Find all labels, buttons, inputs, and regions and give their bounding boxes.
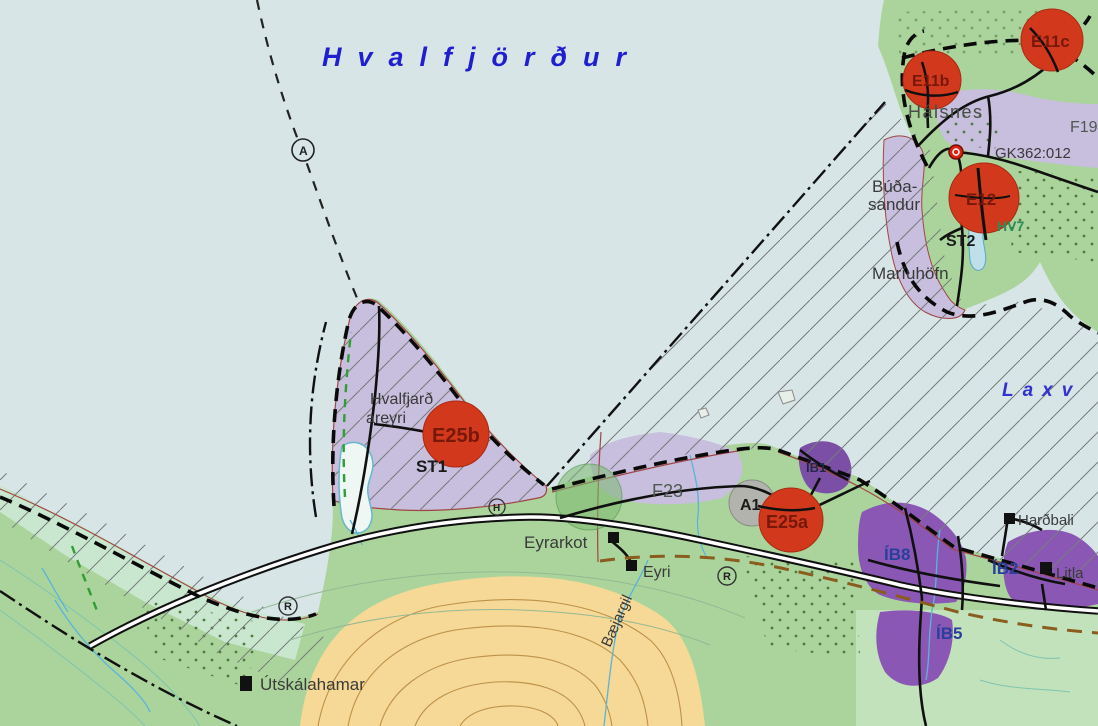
litla-marker <box>1040 562 1052 574</box>
label-litla: Litla <box>1056 565 1084 582</box>
label-f19: F19 <box>1070 119 1098 136</box>
label-ib1: ÍB1 <box>806 460 826 475</box>
label-f23: F23 <box>652 481 683 501</box>
label-hv7: HV7 <box>997 218 1024 234</box>
hardbali-marker <box>1004 513 1015 524</box>
gk-point-marker <box>949 145 963 159</box>
label-e25a: E25a <box>766 512 809 532</box>
label-st1: ST1 <box>416 457 447 476</box>
label-hvalfjardareyri: Hvalfjarð <box>370 391 433 408</box>
label-gk-parcel: GK362:012 <box>995 145 1071 162</box>
laxvogur-label: Laxv <box>1002 380 1081 401</box>
label-e11b: E11b <box>912 73 950 90</box>
label-budasandur: sandur <box>868 195 920 214</box>
forest-patch <box>1005 170 1098 262</box>
circled-a-letter: A <box>299 144 308 158</box>
label-hvalfjardareyri: areyri <box>366 410 406 427</box>
label-utskalahamar: Útskálahamar <box>260 675 365 694</box>
eyrarkot-marker <box>608 532 619 543</box>
circled-r-letter: R <box>284 601 292 613</box>
circled-a-symbol: A <box>292 139 314 161</box>
label-ib8: ÍB8 <box>884 545 910 564</box>
label-eyrarkot: Eyrarkot <box>524 533 588 552</box>
label-budasandur: Búða- <box>872 177 917 196</box>
label-mariuhofn: Maríuhöfn <box>872 264 949 283</box>
label-ib2: ÍB2 <box>992 559 1018 578</box>
map-canvas[interactable]: A R R H Hvalfjörður Laxv Hálsnes Búða- s… <box>0 0 1098 726</box>
label-a1: A1 <box>740 497 761 514</box>
label-e11c: E11c <box>1031 32 1070 51</box>
label-e12: E12 <box>966 190 996 209</box>
planning-map: A R R H Hvalfjörður Laxv Hálsnes Búða- s… <box>0 0 1098 726</box>
label-ib5: ÍB5 <box>936 624 962 643</box>
label-e25b: E25b <box>432 425 480 447</box>
label-st2: ST2 <box>946 233 975 250</box>
circled-r-letter: R <box>723 571 731 583</box>
label-halsnes: Hálsnes <box>908 102 984 122</box>
label-eyri: Eyri <box>643 564 671 581</box>
fjord-title: Hvalfjörður <box>322 42 642 72</box>
circled-h-letter: H <box>493 503 500 514</box>
label-hardbali: Harðbali <box>1018 512 1074 529</box>
utskalahamar-marker <box>240 676 252 691</box>
eyri-marker <box>626 560 637 571</box>
